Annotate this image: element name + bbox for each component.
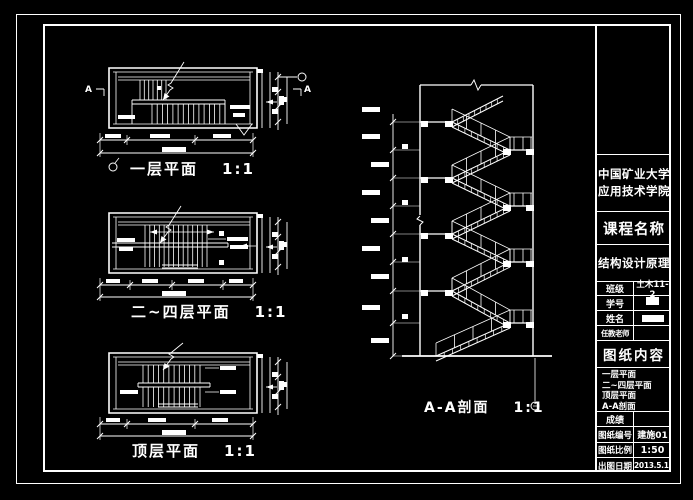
class-row: 班级 土木11-2 (597, 281, 671, 295)
section-marker-a-left: A (85, 85, 92, 95)
student-id-value (634, 296, 671, 310)
plan2-scale: 1:1 (255, 303, 288, 321)
drawing-no-row: 图纸编号 建施01 (597, 426, 671, 442)
grade-label: 成绩 (597, 412, 634, 426)
section-title: A-A剖面 1:1 (424, 397, 545, 417)
drawing-scale-value: 1:50 (634, 443, 671, 457)
plan3-title: 顶层平面 1:1 (132, 440, 257, 461)
student-id-row: 学号 (597, 295, 671, 310)
redacted-student-id (646, 297, 659, 305)
redacted-name (642, 315, 664, 322)
date-value: 2013.5.16 (634, 458, 671, 472)
class-value: 土木11-2 (634, 282, 671, 295)
plan2-title: 二~四层平面 1:1 (131, 301, 287, 322)
school-line2: 应用技术学院 (598, 183, 670, 200)
content-list: 一层平面 二~四层平面 顶层平面 A-A剖面 (597, 367, 671, 411)
content-header: 图纸内容 (597, 340, 671, 367)
school-line1: 中国矿业大学 (598, 166, 670, 183)
student-id-label: 学号 (597, 296, 634, 310)
date-label: 出图日期 (597, 458, 634, 472)
drawing-no-value: 建施01 (634, 427, 671, 442)
content-item-2: 二~四层平面 (602, 381, 671, 392)
date-row: 出图日期 2013.5.16 (597, 457, 671, 472)
grade-value (634, 412, 671, 426)
plan3-label: 顶层平面 (132, 440, 200, 461)
section-label: A-A剖面 (424, 397, 489, 417)
cad-sheet: { "sheet": { "background": "#000000", "l… (0, 0, 693, 500)
course-label: 课程名称 (597, 211, 671, 244)
drawing-scale-label: 图纸比例 (597, 443, 634, 457)
name-label: 姓名 (597, 311, 634, 325)
school-name: 中国矿业大学 应用技术学院 (597, 154, 671, 211)
section-scale: 1:1 (513, 400, 544, 416)
content-item-3: 顶层平面 (602, 391, 671, 402)
plan1-title: 一层平面 1:1 (130, 158, 255, 179)
title-block: 中国矿业大学 应用技术学院 课程名称 结构设计原理 班级 土木11-2 学号 姓… (595, 24, 671, 472)
teacher-row: 任教老师 (597, 325, 671, 340)
section-marker-a-right: A (304, 85, 311, 95)
name-value (634, 311, 671, 325)
content-item-1: 一层平面 (602, 370, 671, 381)
drawing-no-label: 图纸编号 (597, 427, 634, 442)
teacher-value (634, 326, 671, 340)
grade-row: 成绩 (597, 411, 671, 426)
plan1-label: 一层平面 (130, 158, 198, 179)
title-block-empty-cell (597, 24, 671, 154)
plan1-scale: 1:1 (222, 160, 255, 178)
plan2-label: 二~四层平面 (131, 301, 231, 322)
teacher-label: 任教老师 (597, 326, 634, 340)
course-name: 结构设计原理 (597, 244, 671, 281)
plan3-scale: 1:1 (224, 442, 257, 460)
name-row: 姓名 (597, 310, 671, 325)
drawing-scale-row: 图纸比例 1:50 (597, 442, 671, 457)
cad-linework (0, 0, 693, 500)
class-label: 班级 (597, 282, 634, 295)
